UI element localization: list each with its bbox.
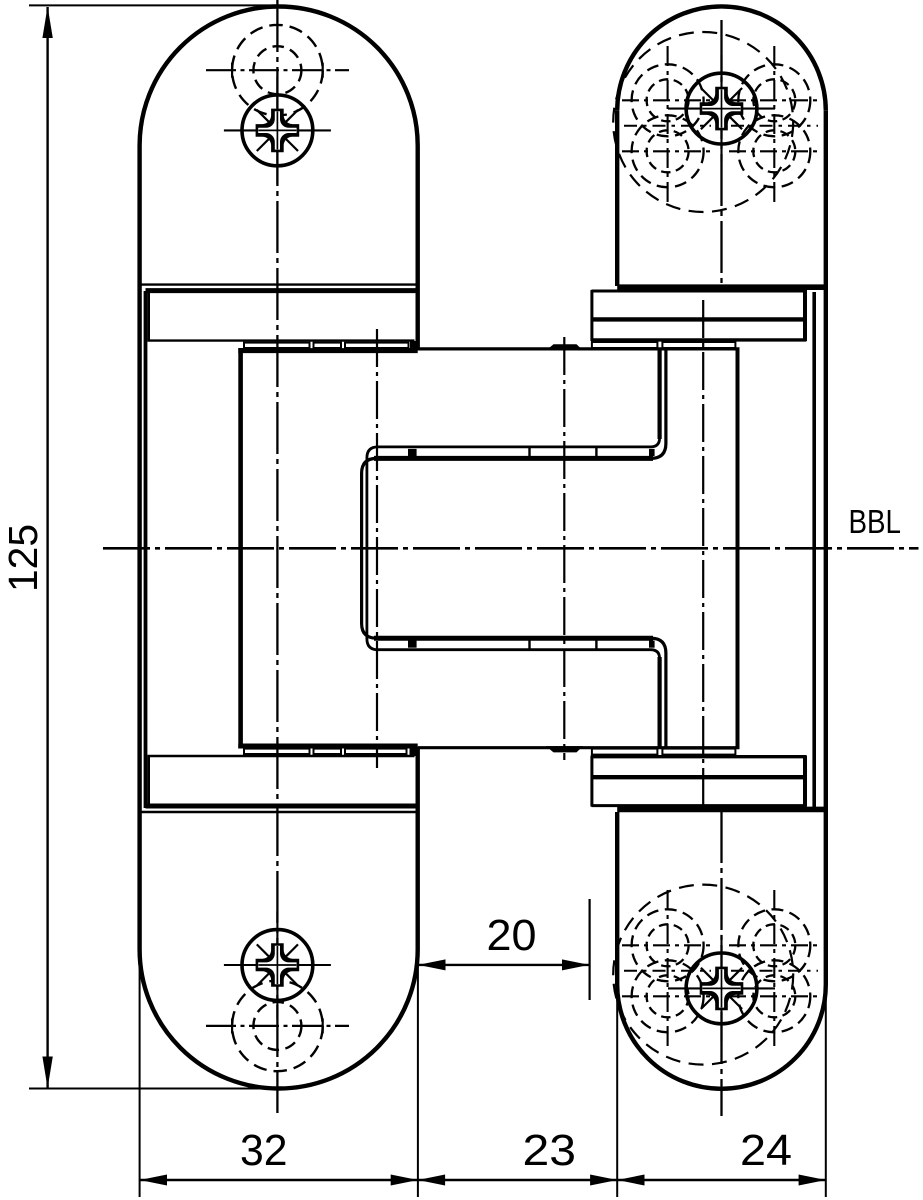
svg-text:23: 23 [523,1126,577,1175]
svg-text:125: 125 [0,524,46,592]
svg-text:BBL: BBL [849,503,902,540]
svg-text:32: 32 [240,1126,288,1175]
svg-text:24: 24 [740,1126,792,1175]
svg-text:20: 20 [487,911,537,960]
